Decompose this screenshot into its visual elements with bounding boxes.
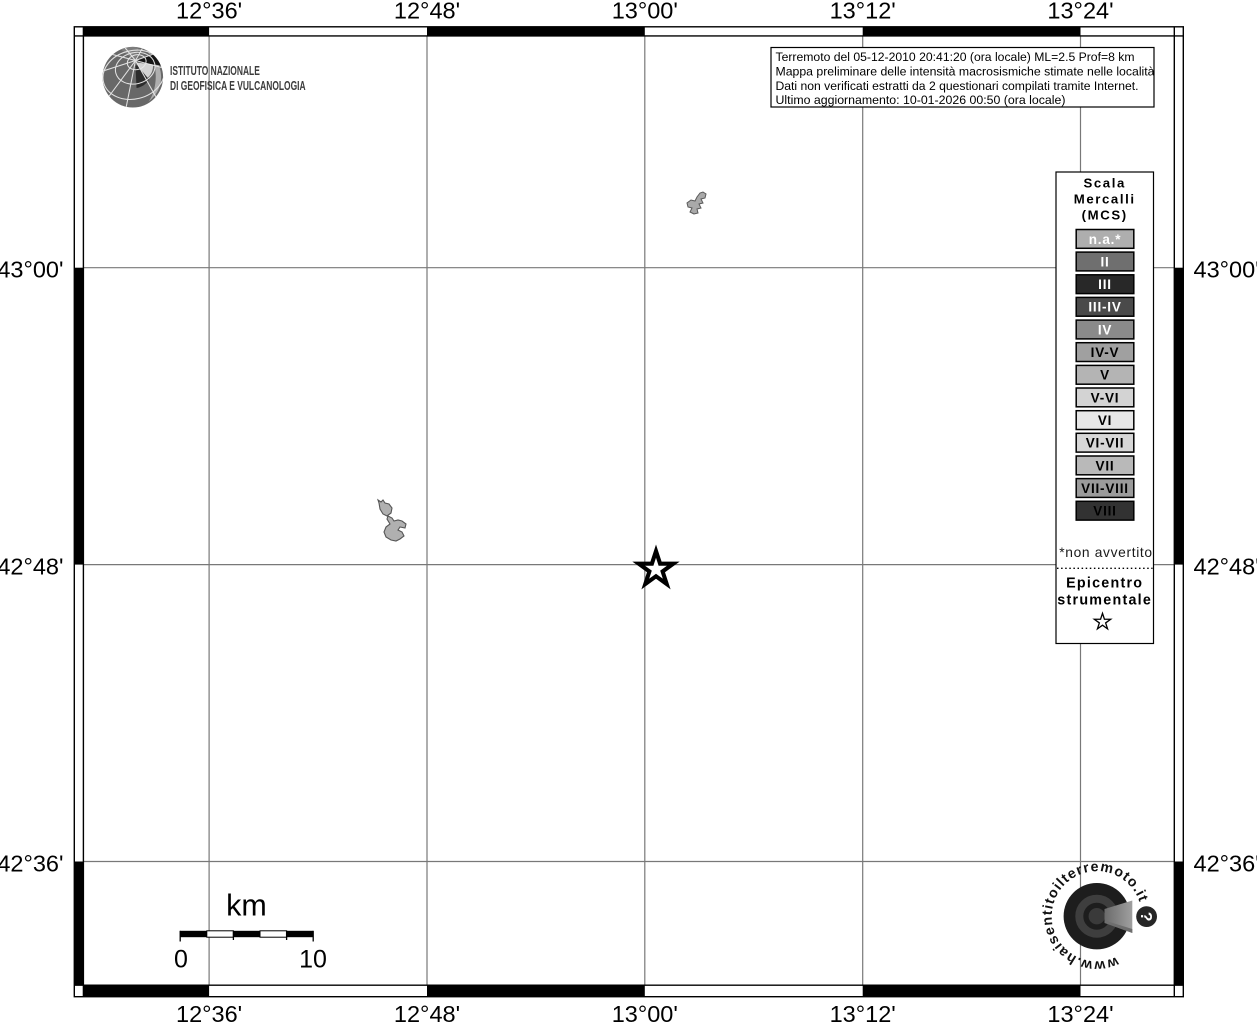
- svg-text:42°36': 42°36': [0, 850, 64, 876]
- svg-text:V: V: [1100, 368, 1110, 383]
- svg-text:13°24': 13°24': [1047, 1001, 1113, 1024]
- svg-text:13°12': 13°12': [830, 0, 896, 23]
- svg-text:10: 10: [299, 945, 327, 973]
- svg-text:strumentale: strumentale: [1057, 593, 1152, 609]
- svg-text:III-IV: III-IV: [1088, 300, 1121, 315]
- svg-text:Terremoto del 05-12-2010 20:41: Terremoto del 05-12-2010 20:41:20 (ora l…: [776, 50, 1135, 64]
- svg-text:13°00': 13°00': [612, 0, 678, 23]
- svg-text:Dati non verificati estratti d: Dati non verificati estratti da 2 questi…: [776, 79, 1139, 93]
- svg-text:Epicentro: Epicentro: [1066, 576, 1143, 592]
- svg-text:Ultimo aggiornamento: 10-01-20: Ultimo aggiornamento: 10-01-2026 00:50 (…: [776, 93, 1066, 107]
- svg-text:VI: VI: [1098, 413, 1112, 428]
- svg-text:?: ?: [1137, 912, 1154, 922]
- svg-text:VII: VII: [1096, 458, 1115, 473]
- svg-text:*non avvertito: *non avvertito: [1059, 545, 1152, 560]
- svg-text:ISTITUTO NAZIONALE: ISTITUTO NAZIONALE: [170, 64, 260, 78]
- svg-text:43°00': 43°00': [1194, 257, 1257, 283]
- svg-text:12°48': 12°48': [394, 1001, 460, 1024]
- svg-text:II: II: [1100, 254, 1109, 269]
- svg-text:V-VI: V-VI: [1091, 390, 1120, 405]
- svg-text:13°12': 13°12': [830, 1001, 896, 1024]
- svg-text:IV: IV: [1098, 322, 1112, 337]
- svg-text:12°48': 12°48': [394, 0, 460, 23]
- svg-text:DI GEOFISICA E VULCANOLOGIA: DI GEOFISICA E VULCANOLOGIA: [170, 79, 306, 93]
- svg-text:12°36': 12°36': [176, 1001, 242, 1024]
- svg-text:Mercalli: Mercalli: [1074, 191, 1136, 206]
- svg-text:13°24': 13°24': [1047, 0, 1113, 23]
- svg-text:VIII: VIII: [1093, 504, 1116, 519]
- svg-text:km: km: [226, 889, 267, 923]
- svg-text:(MCS): (MCS): [1082, 208, 1128, 223]
- svg-text:42°48': 42°48': [0, 553, 64, 579]
- svg-text:0: 0: [174, 945, 188, 973]
- svg-text:VII-VIII: VII-VIII: [1081, 481, 1129, 496]
- svg-text:III: III: [1098, 277, 1112, 292]
- svg-text:n.a.*: n.a.*: [1089, 232, 1122, 247]
- svg-text:12°36': 12°36': [176, 0, 242, 23]
- svg-text:43°00': 43°00': [0, 257, 64, 283]
- svg-text:IV-V: IV-V: [1091, 345, 1120, 360]
- svg-text:Mappa preliminare delle intens: Mappa preliminare delle intensità macros…: [776, 64, 1155, 78]
- svg-text:42°48': 42°48': [1194, 553, 1257, 579]
- svg-text:VI-VII: VI-VII: [1086, 436, 1125, 451]
- svg-text:42°36': 42°36': [1194, 850, 1257, 876]
- svg-text:Scala: Scala: [1083, 176, 1125, 191]
- svg-text:13°00': 13°00': [612, 1001, 678, 1024]
